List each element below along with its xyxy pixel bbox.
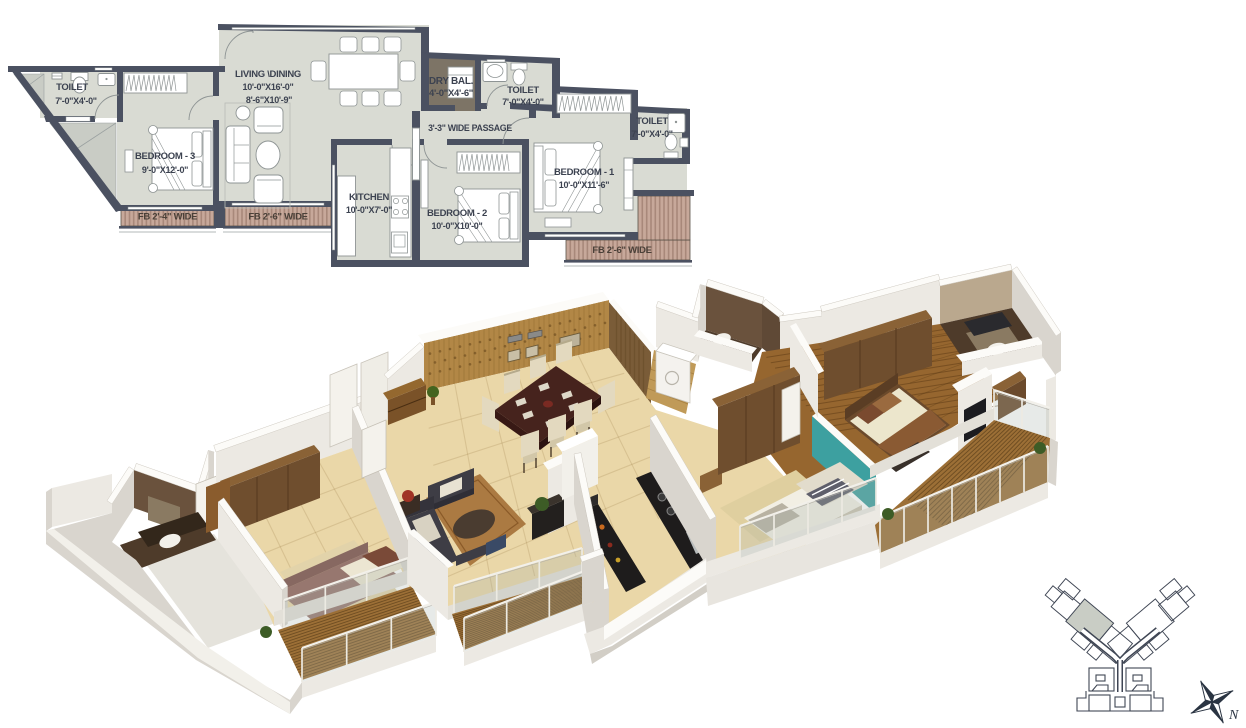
svg-text:BEDROOM - 2: BEDROOM - 2	[427, 208, 487, 219]
svg-text:7'-0"X4'-0": 7'-0"X4'-0"	[55, 96, 97, 106]
svg-text:LIVING \DINING: LIVING \DINING	[235, 69, 301, 80]
svg-text:3'-3" WIDE PASSAGE: 3'-3" WIDE PASSAGE	[428, 123, 512, 133]
svg-text:10'-0"X7'-0": 10'-0"X7'-0"	[346, 205, 392, 215]
svg-text:TOILET: TOILET	[56, 82, 88, 93]
svg-text:7'-0"X4'-0": 7'-0"X4'-0"	[502, 97, 544, 107]
svg-text:9'-0"X12'-0": 9'-0"X12'-0"	[142, 165, 188, 175]
svg-text:BEDROOM - 1: BEDROOM - 1	[554, 167, 615, 178]
svg-text:TOILET: TOILET	[636, 116, 668, 127]
svg-text:DRY BAL.: DRY BAL.	[429, 76, 474, 87]
svg-text:FB 2'-6" WIDE: FB 2'-6" WIDE	[592, 245, 651, 256]
svg-text:FB 2'-4" WIDE: FB 2'-4" WIDE	[138, 212, 197, 223]
svg-text:7'-0"X4'-0": 7'-0"X4'-0"	[631, 129, 673, 139]
svg-text:TOILET: TOILET	[507, 85, 539, 96]
svg-text:10'-0"X10'-0": 10'-0"X10'-0"	[432, 221, 483, 231]
svg-text:FB 2'-6" WIDE: FB 2'-6" WIDE	[248, 212, 307, 223]
svg-text:KITCHEN: KITCHEN	[349, 192, 390, 203]
svg-text:4'-0"X4'-6": 4'-0"X4'-6"	[429, 88, 473, 99]
svg-text:10'-0"X11'-6": 10'-0"X11'-6"	[559, 180, 609, 190]
svg-text:8'-6"X10'-9": 8'-6"X10'-9"	[246, 95, 292, 105]
svg-text:10'-0"X16'-0": 10'-0"X16'-0"	[243, 82, 294, 92]
svg-text:N: N	[1228, 708, 1239, 723]
svg-text:BEDROOM - 3: BEDROOM - 3	[135, 151, 195, 162]
